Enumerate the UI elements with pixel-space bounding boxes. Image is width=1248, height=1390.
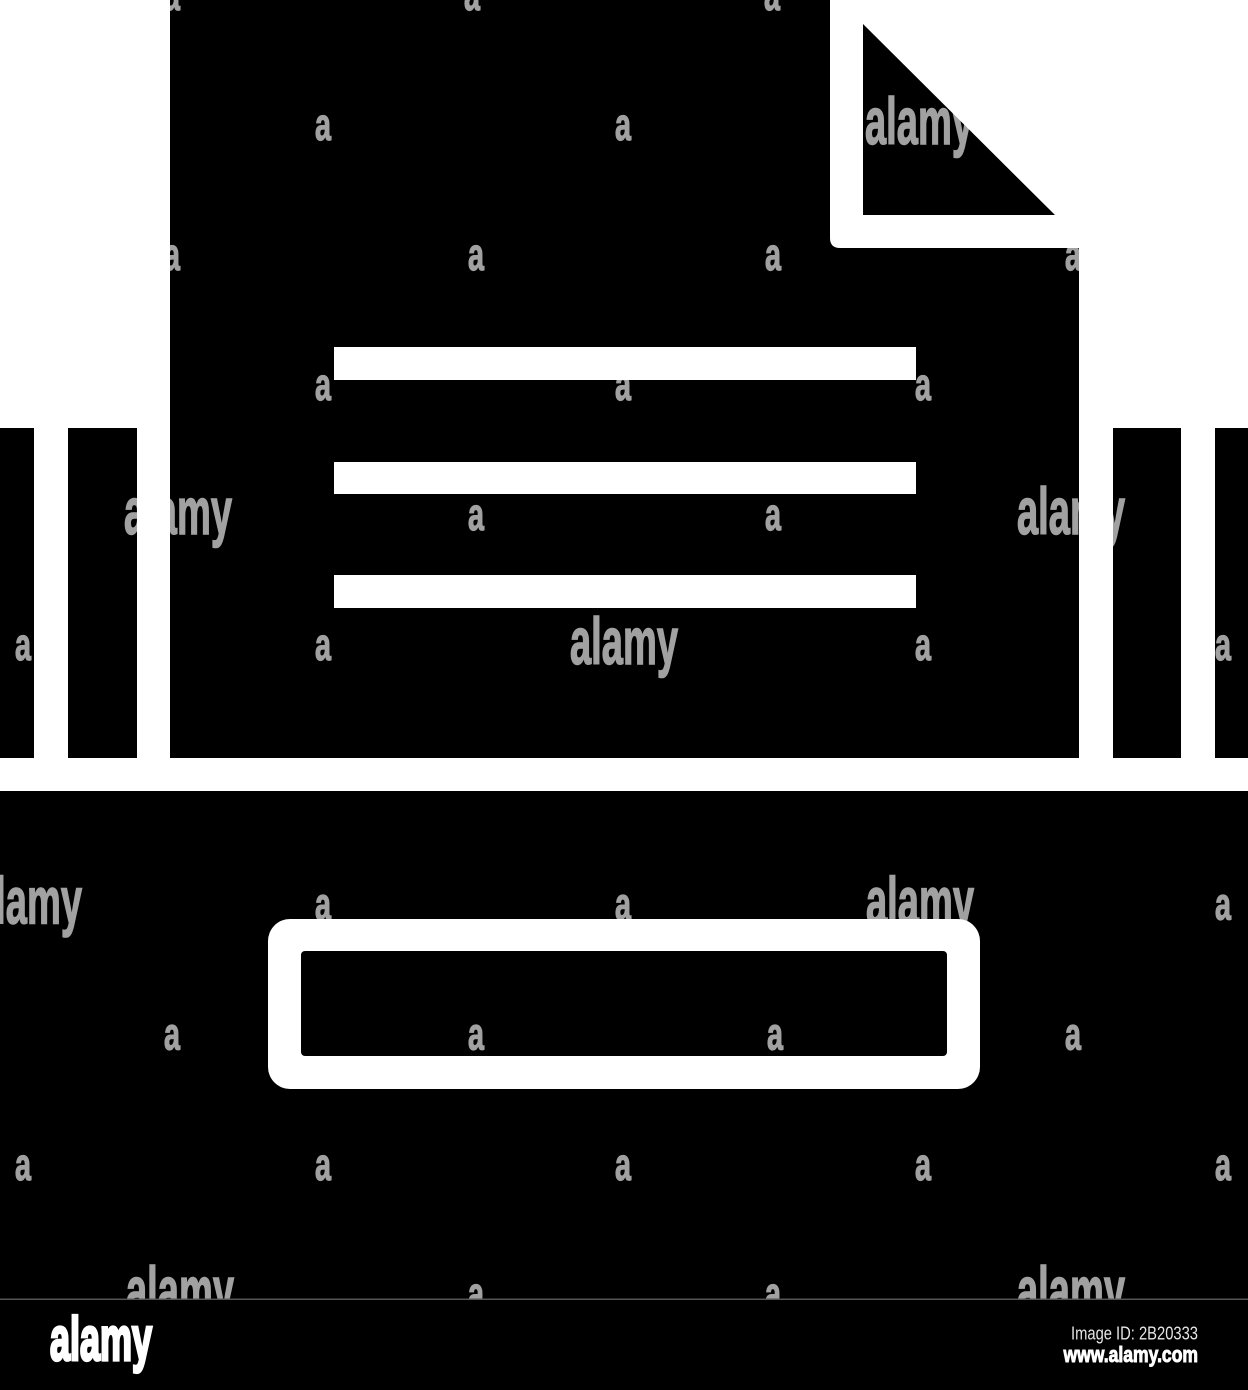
svg-text:a: a bbox=[1215, 879, 1232, 930]
svg-text:alamy: alamy bbox=[865, 84, 973, 158]
svg-text:alamy: alamy bbox=[0, 864, 82, 938]
svg-text:a: a bbox=[1087, 0, 1104, 20]
svg-text:a: a bbox=[615, 99, 632, 150]
svg-text:a: a bbox=[468, 1009, 485, 1060]
svg-text:a: a bbox=[164, 229, 181, 280]
svg-text:a: a bbox=[765, 229, 782, 280]
svg-text:a: a bbox=[464, 0, 481, 20]
svg-text:a: a bbox=[315, 619, 332, 670]
svg-text:alamy: alamy bbox=[866, 864, 974, 938]
svg-text:a: a bbox=[615, 1139, 632, 1190]
svg-text:a: a bbox=[468, 489, 485, 540]
svg-text:a: a bbox=[915, 1139, 932, 1190]
svg-text:a: a bbox=[915, 619, 932, 670]
svg-text:alamy: alamy bbox=[50, 1305, 152, 1373]
svg-text:Image ID: 2B20333: Image ID: 2B20333 bbox=[1071, 1324, 1198, 1344]
svg-text:a: a bbox=[164, 0, 181, 20]
svg-text:a: a bbox=[315, 99, 332, 150]
svg-text:a: a bbox=[164, 1009, 181, 1060]
svg-text:a: a bbox=[615, 879, 632, 930]
svg-text:a: a bbox=[765, 489, 782, 540]
svg-text:a: a bbox=[315, 1139, 332, 1190]
svg-text:a: a bbox=[764, 0, 781, 20]
svg-text:www.alamy.com: www.alamy.com bbox=[1063, 1342, 1198, 1367]
svg-text:a: a bbox=[15, 619, 32, 670]
svg-text:a: a bbox=[315, 359, 332, 410]
svg-text:a: a bbox=[1065, 1009, 1082, 1060]
svg-text:a: a bbox=[468, 229, 485, 280]
svg-text:a: a bbox=[615, 359, 632, 410]
svg-text:a: a bbox=[15, 1139, 32, 1190]
svg-text:alamy: alamy bbox=[570, 604, 678, 678]
svg-text:a: a bbox=[1215, 1139, 1232, 1190]
svg-text:a: a bbox=[1215, 619, 1232, 670]
svg-text:alamy: alamy bbox=[1017, 474, 1125, 548]
svg-text:a: a bbox=[1065, 229, 1082, 280]
svg-text:a: a bbox=[315, 879, 332, 930]
svg-text:a: a bbox=[767, 1009, 784, 1060]
svg-text:a: a bbox=[915, 359, 932, 410]
svg-text:alamy: alamy bbox=[124, 474, 232, 548]
